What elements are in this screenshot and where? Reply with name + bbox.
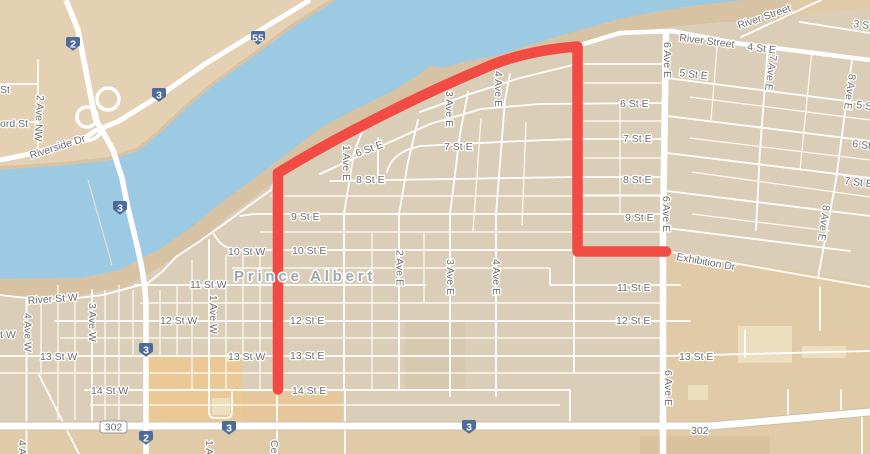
svg-text:3: 3 [226, 423, 232, 435]
svg-text:14 St W: 14 St W [91, 385, 128, 397]
svg-text:12 St E: 12 St E [290, 315, 324, 327]
svg-text:ord St: ord St [0, 118, 28, 130]
svg-text:3 Ave E: 3 Ave E [443, 91, 455, 127]
svg-text:11 St E: 11 St E [617, 282, 651, 294]
svg-text:14 St E: 14 St E [292, 385, 326, 397]
svg-text:55: 55 [252, 33, 264, 45]
svg-text:Ce: Ce [268, 440, 280, 454]
svg-text:3: 3 [156, 90, 162, 102]
svg-text:3 S: 3 S [853, 18, 870, 32]
svg-text:1 A: 1 A [203, 440, 215, 454]
svg-text:7 St E: 7 St E [623, 133, 652, 145]
svg-text:7 St E: 7 St E [444, 141, 473, 153]
svg-text:3: 3 [466, 422, 472, 434]
svg-text:10 St E: 10 St E [292, 245, 326, 257]
svg-text:5 St: 5 St [856, 99, 870, 113]
svg-text:302: 302 [691, 425, 709, 437]
svg-text:13 St E: 13 St E [290, 350, 324, 362]
svg-text:2 Ave NW: 2 Ave NW [32, 95, 46, 142]
svg-text:4 Ave W: 4 Ave W [22, 313, 34, 352]
svg-text:3 Ave E: 3 Ave E [444, 259, 456, 295]
svg-text:4 Ave E: 4 Ave E [492, 71, 504, 107]
svg-text:St: St [0, 84, 10, 96]
svg-text:12 St W: 12 St W [160, 315, 197, 327]
svg-text:3: 3 [117, 203, 123, 215]
svg-text:6 Ave E: 6 Ave E [660, 196, 672, 232]
svg-text:1 Ave E: 1 Ave E [340, 145, 352, 181]
svg-text:11 St W: 11 St W [190, 279, 227, 291]
svg-text:2: 2 [70, 39, 76, 51]
svg-text:6 St E: 6 St E [620, 98, 649, 110]
svg-text:13 St W: 13 St W [40, 351, 77, 363]
svg-text:8 St E: 8 St E [356, 174, 385, 186]
svg-text:8 St E: 8 St E [623, 174, 652, 186]
svg-text:3 Ave W: 3 Ave W [86, 303, 98, 342]
svg-text:2: 2 [143, 433, 149, 445]
svg-text:6 Ave E: 6 Ave E [662, 370, 674, 406]
svg-text:2 Ave E: 2 Ave E [394, 250, 406, 286]
svg-text:6 St: 6 St [852, 138, 870, 152]
svg-text:9 St E: 9 St E [625, 212, 654, 224]
svg-text:3: 3 [143, 345, 149, 357]
svg-text:4 A: 4 A [16, 440, 28, 454]
svg-text:10 St W: 10 St W [228, 246, 265, 258]
svg-text:302: 302 [105, 422, 123, 434]
svg-text:t W: t W [0, 329, 16, 341]
svg-text:12 St E: 12 St E [616, 315, 650, 327]
svg-text:Prince Albert: Prince Albert [234, 268, 376, 285]
svg-text:6 Ave E: 6 Ave E [661, 42, 673, 78]
svg-text:1 Ave W: 1 Ave W [207, 295, 219, 334]
svg-text:13 St W: 13 St W [228, 351, 265, 363]
svg-text:4 Ave E: 4 Ave E [490, 259, 502, 295]
svg-text:13 St E: 13 St E [679, 351, 713, 363]
svg-text:9 St E: 9 St E [291, 211, 320, 223]
